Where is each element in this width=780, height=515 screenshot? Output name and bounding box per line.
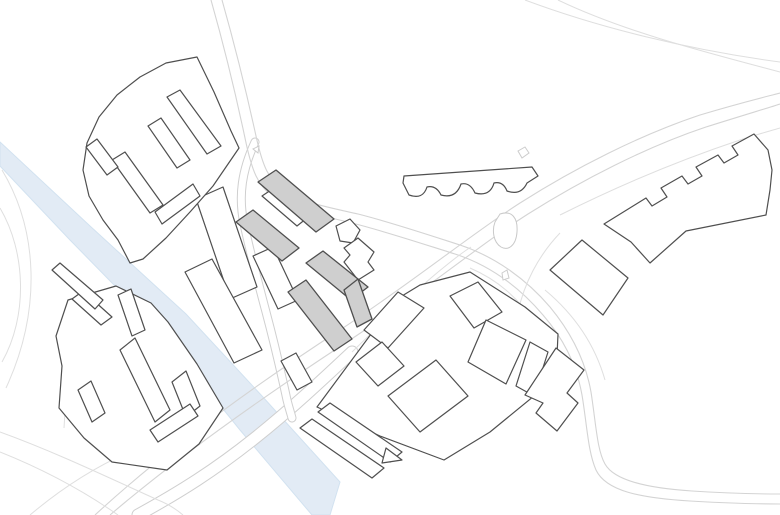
traffic-island-east [502,270,509,280]
road-southwest-b [0,452,118,515]
traffic-island-diamond [518,147,529,158]
site-plan-figure [0,0,780,515]
road-west-loop-arc-inner [0,208,21,362]
road-west-loop-arc-outer [2,170,31,388]
road-top-right-corner-b [558,0,780,72]
building-east-quad [550,240,628,315]
landform-blob [493,213,517,248]
building-scalloped [403,167,538,196]
road-main-north-south-a [211,0,780,504]
road-top-right-corner-a [525,0,780,62]
site-plan-map [0,0,780,515]
building-east-notched [604,134,772,263]
